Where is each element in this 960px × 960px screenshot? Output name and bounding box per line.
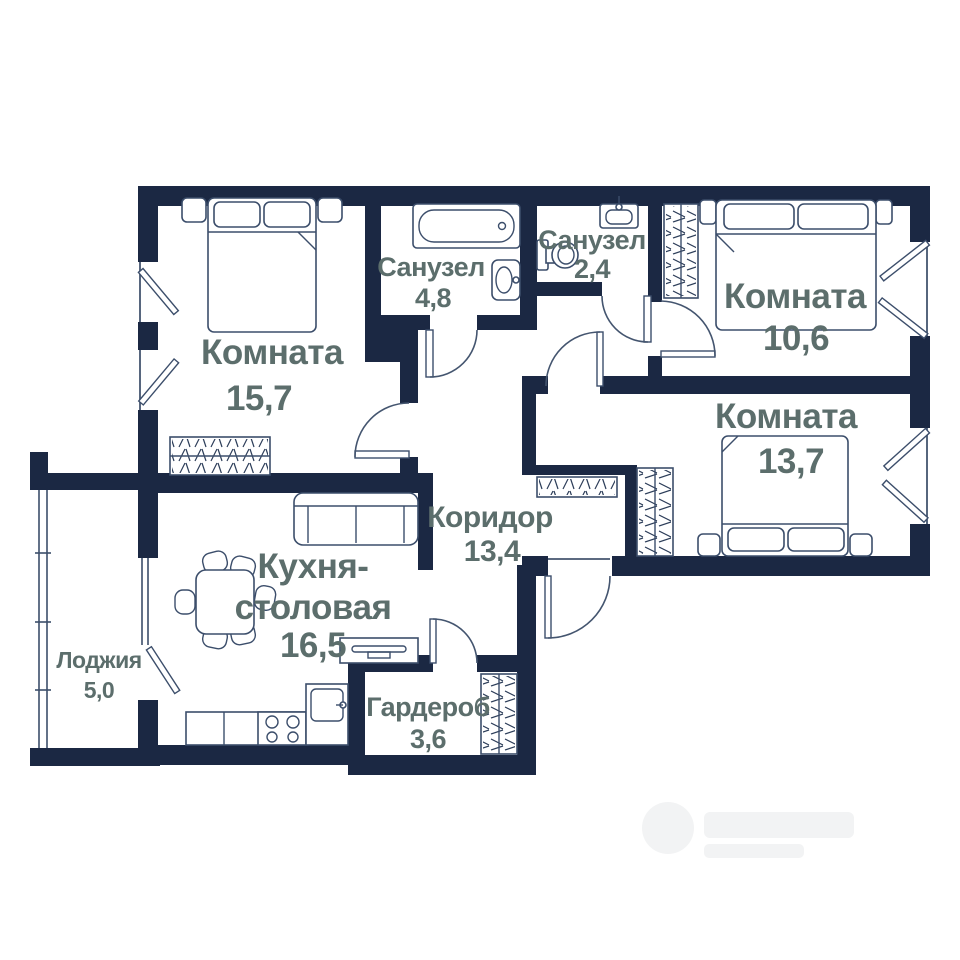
room-106-label: Комната bbox=[724, 277, 867, 316]
door-leaf bbox=[430, 619, 436, 663]
room-157-label: Комната bbox=[201, 333, 344, 372]
bath-24-area: 2,4 bbox=[574, 254, 611, 284]
wall bbox=[477, 655, 517, 672]
door-leaf bbox=[597, 332, 603, 386]
wall bbox=[648, 206, 662, 302]
wall bbox=[365, 315, 430, 330]
wall bbox=[522, 380, 536, 473]
wall bbox=[400, 457, 418, 473]
wall bbox=[138, 700, 158, 745]
sink-icon bbox=[492, 260, 520, 300]
sofa-icon bbox=[294, 493, 418, 545]
wall bbox=[520, 206, 537, 330]
wall bbox=[365, 330, 418, 362]
entrance-door-leaf bbox=[545, 576, 551, 638]
wall bbox=[138, 186, 158, 262]
stove-icon bbox=[258, 712, 306, 745]
wardrobe-cabinet-icon bbox=[637, 468, 673, 556]
door-leaf bbox=[426, 330, 433, 377]
wall bbox=[612, 556, 930, 576]
bath-48-area: 4,8 bbox=[415, 283, 452, 313]
wall bbox=[30, 473, 138, 490]
kitchen-counter-icon bbox=[186, 684, 348, 745]
entrance-door-arc bbox=[548, 576, 610, 638]
wall bbox=[348, 755, 536, 775]
wardrobe-area: 3,6 bbox=[410, 724, 447, 754]
door-leaf bbox=[661, 351, 715, 357]
balcony-door-sash-icon bbox=[146, 647, 179, 694]
kitchen-area: 16,5 bbox=[280, 626, 346, 665]
wall bbox=[138, 473, 433, 493]
door-arc bbox=[433, 619, 477, 663]
wall bbox=[138, 745, 365, 765]
window-sash-icon bbox=[884, 428, 930, 470]
bathtub-icon bbox=[413, 204, 520, 248]
wall bbox=[625, 465, 637, 560]
window-sash-icon bbox=[138, 269, 178, 315]
door-arc bbox=[546, 332, 600, 386]
loggia-area: 5,0 bbox=[84, 677, 114, 703]
wall bbox=[30, 748, 160, 766]
wardrobe-cabinet-icon bbox=[664, 204, 698, 298]
door-arc bbox=[355, 403, 409, 457]
bath-24-label: Санузел bbox=[538, 225, 646, 255]
door-arc bbox=[661, 301, 715, 356]
wall bbox=[517, 565, 536, 775]
room-157-area: 15,7 bbox=[226, 379, 292, 418]
wall bbox=[138, 322, 158, 350]
corridor-area: 13,4 bbox=[464, 535, 521, 568]
room-137-area: 13,7 bbox=[758, 442, 824, 481]
door-leaf bbox=[355, 451, 409, 458]
wardrobe-cabinet-icon bbox=[170, 437, 270, 475]
floor-plan-page: Комната 15,7 Санузел 4,8 Санузел 2,4 Ком… bbox=[0, 0, 960, 960]
wall bbox=[138, 410, 158, 473]
wall bbox=[522, 465, 637, 475]
sink-cabinet bbox=[306, 684, 348, 745]
wardrobe-label: Гардероб bbox=[366, 692, 490, 722]
wall bbox=[520, 282, 602, 296]
floor-plan: Комната 15,7 Санузел 4,8 Санузел 2,4 Ком… bbox=[0, 0, 960, 960]
bath-48-label: Санузел bbox=[377, 252, 485, 282]
window-sash-icon bbox=[139, 359, 179, 405]
double-bed-icon bbox=[182, 198, 342, 332]
door-arc bbox=[430, 330, 477, 377]
kitchen-label-line2: столовая bbox=[235, 588, 392, 627]
window-sash-icon bbox=[878, 298, 927, 338]
wall bbox=[400, 362, 418, 403]
room-106-area: 10,6 bbox=[763, 319, 829, 358]
tv-stand-icon bbox=[340, 638, 418, 663]
wall bbox=[910, 186, 930, 242]
loggia-label: Лоджия bbox=[56, 647, 141, 673]
kitchen-label-line1: Кухня- bbox=[258, 547, 369, 586]
window-sash-icon bbox=[882, 480, 928, 522]
room-137-label: Комната bbox=[715, 397, 858, 436]
door-arc bbox=[602, 296, 648, 342]
wall bbox=[648, 376, 930, 394]
window-sash-icon bbox=[880, 240, 929, 280]
wall bbox=[30, 452, 48, 473]
door-leaf bbox=[644, 296, 651, 342]
corridor-label: Коридор bbox=[427, 501, 553, 534]
wall bbox=[600, 376, 662, 394]
watermark bbox=[642, 802, 854, 858]
wardrobe-cabinet-icon bbox=[537, 477, 617, 497]
